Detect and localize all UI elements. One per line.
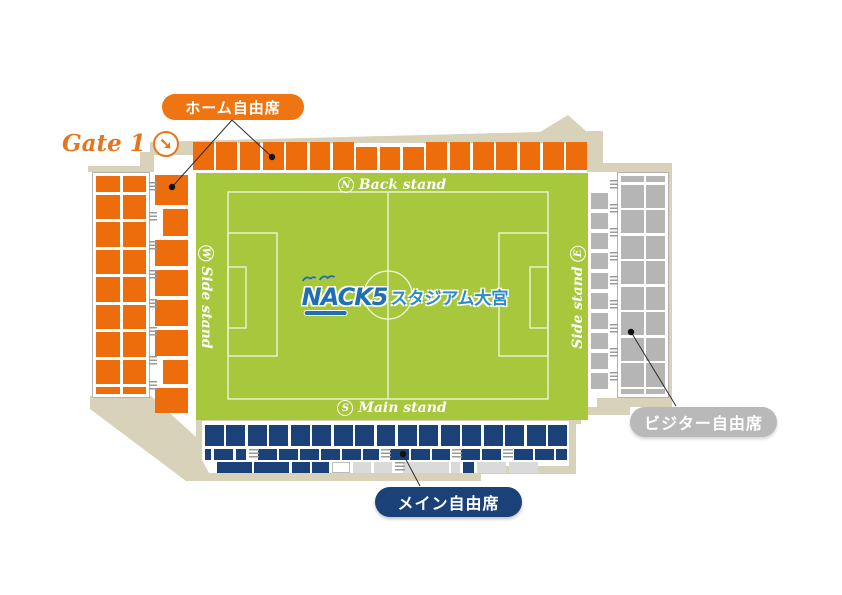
seat-block[interactable] xyxy=(591,313,608,329)
main-stand-letter: S xyxy=(337,400,353,416)
seat-block[interactable] xyxy=(300,449,319,460)
seat-block[interactable] xyxy=(155,330,188,356)
stairs-icon xyxy=(149,241,157,252)
seat-block[interactable] xyxy=(216,142,237,170)
seat-block[interactable] xyxy=(646,363,665,386)
seat-block[interactable] xyxy=(155,270,188,296)
stairs-icon xyxy=(149,381,157,392)
seat-block[interactable] xyxy=(286,142,307,170)
seat-block[interactable] xyxy=(377,425,396,446)
stairs-icon xyxy=(149,270,157,281)
seat-block[interactable] xyxy=(419,425,438,446)
seat-block[interactable] xyxy=(543,142,564,170)
seat-block[interactable] xyxy=(462,425,481,446)
stairs-icon xyxy=(149,356,157,367)
seat-block[interactable] xyxy=(163,360,188,384)
north-stand-blocks xyxy=(193,142,587,172)
seat-block[interactable] xyxy=(411,449,430,460)
seat-block[interactable] xyxy=(355,425,374,446)
seat-block[interactable] xyxy=(441,425,460,446)
stadium-logo-brand: NACK5 xyxy=(302,283,388,311)
west-side-stand-text: Side stand xyxy=(198,266,214,348)
gate-arrow-icon: ➘ xyxy=(153,131,179,157)
seat-block[interactable] xyxy=(123,195,147,219)
seat-block[interactable] xyxy=(390,449,409,460)
seat-block[interactable] xyxy=(123,305,147,329)
seat-block[interactable] xyxy=(163,209,188,236)
seat-block[interactable] xyxy=(332,462,350,473)
seat-block[interactable] xyxy=(96,305,120,329)
seat-block[interactable] xyxy=(363,449,379,460)
west-side-stand-letter: W xyxy=(198,245,214,261)
seat-block[interactable] xyxy=(646,312,665,335)
east-outer-stand xyxy=(617,172,669,398)
stairs-icon xyxy=(149,327,157,338)
seat-block[interactable] xyxy=(591,233,608,249)
seat-block[interactable] xyxy=(646,185,665,208)
seat-block[interactable] xyxy=(258,449,277,460)
east-side-stand-label: Side stand E xyxy=(570,245,586,348)
seat-block[interactable] xyxy=(374,462,392,473)
seat-block[interactable] xyxy=(535,449,554,460)
seat-block[interactable] xyxy=(621,312,644,335)
seat-block[interactable] xyxy=(646,236,665,259)
seat-block[interactable] xyxy=(646,338,665,361)
seat-block[interactable] xyxy=(248,425,267,446)
gate-1-marker: Gate 1 ➘ xyxy=(62,130,179,157)
seat-block[interactable] xyxy=(356,147,377,170)
seat-block[interactable] xyxy=(591,253,608,269)
home-free-seat-pill[interactable]: ホーム自由席 xyxy=(162,94,304,120)
seat-block[interactable] xyxy=(591,333,608,349)
seat-block[interactable] xyxy=(226,425,245,446)
seat-block[interactable] xyxy=(96,222,120,246)
seat-block[interactable] xyxy=(477,462,506,473)
seat-block[interactable] xyxy=(353,462,371,473)
seat-block[interactable] xyxy=(155,388,188,413)
seat-block[interactable] xyxy=(451,462,460,473)
stairs-icon xyxy=(452,449,462,460)
seat-block[interactable] xyxy=(484,425,503,446)
main-free-seat-pill[interactable]: メイン自由席 xyxy=(375,487,522,517)
main-stand-label: S Main stand xyxy=(196,400,588,416)
seat-block[interactable] xyxy=(205,425,224,446)
seat-block[interactable] xyxy=(96,360,120,384)
seat-block[interactable] xyxy=(509,462,538,473)
seat-block[interactable] xyxy=(217,462,252,473)
seat-block[interactable] xyxy=(403,147,424,170)
east-side-stand-letter: E xyxy=(570,245,586,261)
seat-block[interactable] xyxy=(240,142,261,170)
seat-block[interactable] xyxy=(482,449,501,460)
seat-block[interactable] xyxy=(269,425,288,446)
east-side-stand-text: Side stand xyxy=(570,266,586,348)
seat-block[interactable] xyxy=(334,425,353,446)
stairs-icon xyxy=(249,449,259,460)
seat-block[interactable] xyxy=(520,142,541,170)
seat-block[interactable] xyxy=(621,363,644,386)
seat-block[interactable] xyxy=(292,462,310,473)
logo-subtext-decoration xyxy=(305,311,347,315)
seat-block[interactable] xyxy=(591,213,608,229)
seat-block[interactable] xyxy=(403,462,449,473)
seat-block[interactable] xyxy=(426,142,447,170)
seat-block[interactable] xyxy=(96,387,120,394)
seat-block[interactable] xyxy=(155,175,188,205)
gate-1-label: Gate 1 xyxy=(62,130,146,157)
pitch: N Back stand S Main stand W Side stand S… xyxy=(196,173,588,420)
seat-block[interactable] xyxy=(621,176,644,182)
seat-block[interactable] xyxy=(123,222,147,246)
south-stand-row1 xyxy=(205,425,567,446)
seat-block[interactable] xyxy=(496,142,517,170)
seat-block[interactable] xyxy=(123,387,147,394)
back-stand-text: Back stand xyxy=(359,177,446,193)
logo-birds-icon xyxy=(302,274,336,284)
seat-block[interactable] xyxy=(646,389,665,394)
stairs-icon xyxy=(610,348,618,359)
seat-block[interactable] xyxy=(342,449,361,460)
seat-block[interactable] xyxy=(96,176,120,192)
seat-block[interactable] xyxy=(621,338,644,361)
seat-block[interactable] xyxy=(96,250,120,274)
seat-block[interactable] xyxy=(236,449,246,460)
seat-block[interactable] xyxy=(380,147,401,170)
stadium-seating-map: N Back stand S Main stand W Side stand S… xyxy=(0,0,842,595)
seat-block[interactable] xyxy=(123,250,147,274)
seat-block[interactable] xyxy=(646,210,665,233)
stairs-icon xyxy=(610,276,618,287)
seat-block[interactable] xyxy=(279,449,298,460)
northeast-corner xyxy=(587,131,603,172)
seat-block[interactable] xyxy=(566,142,587,170)
seat-block[interactable] xyxy=(505,425,524,446)
seat-block[interactable] xyxy=(514,449,533,460)
stairs-icon xyxy=(610,252,618,263)
seat-block[interactable] xyxy=(591,353,608,369)
seat-block[interactable] xyxy=(461,449,480,460)
stadium-logo-name: スタジアム大宮 xyxy=(391,284,509,309)
seat-block[interactable] xyxy=(591,293,608,309)
seat-block[interactable] xyxy=(646,176,665,182)
seat-block[interactable] xyxy=(155,240,188,266)
seat-block[interactable] xyxy=(254,462,289,473)
visitor-free-seat-pill[interactable]: ビジター自由席 xyxy=(630,407,777,437)
seat-block[interactable] xyxy=(432,449,450,460)
seat-block[interactable] xyxy=(621,261,644,284)
seat-block[interactable] xyxy=(321,449,340,460)
stairs-icon xyxy=(610,324,618,335)
seat-block[interactable] xyxy=(193,142,214,170)
seat-block[interactable] xyxy=(548,425,567,446)
seat-block[interactable] xyxy=(473,142,494,170)
back-stand-letter: N xyxy=(338,177,354,193)
seat-block[interactable] xyxy=(463,462,474,473)
stadium-logo: NACK5 スタジアム大宮 xyxy=(302,283,509,311)
seat-block[interactable] xyxy=(591,373,608,389)
stairs-icon xyxy=(395,462,405,473)
west-outer-stand xyxy=(92,172,150,398)
seat-block[interactable] xyxy=(556,449,567,460)
seat-block[interactable] xyxy=(621,389,644,394)
seat-block[interactable] xyxy=(263,142,284,170)
seat-block[interactable] xyxy=(96,332,120,356)
stairs-icon xyxy=(149,299,157,310)
seat-block[interactable] xyxy=(621,236,644,259)
seat-block[interactable] xyxy=(214,449,233,460)
seat-block[interactable] xyxy=(450,142,471,170)
seat-block[interactable] xyxy=(123,332,147,356)
seat-block[interactable] xyxy=(123,277,147,301)
seat-block[interactable] xyxy=(205,449,211,460)
stairs-icon xyxy=(610,204,618,215)
seat-block[interactable] xyxy=(96,195,120,219)
stairs-icon xyxy=(149,212,157,223)
seat-block[interactable] xyxy=(398,425,417,446)
stairs-icon xyxy=(381,449,391,460)
stairs-icon xyxy=(610,300,618,311)
seat-block[interactable] xyxy=(123,360,147,384)
seat-block[interactable] xyxy=(333,142,354,170)
seat-block[interactable] xyxy=(291,425,310,446)
seat-block[interactable] xyxy=(646,287,665,310)
seat-block[interactable] xyxy=(621,185,644,208)
seat-block[interactable] xyxy=(591,193,608,209)
stairs-icon xyxy=(610,372,618,383)
seat-block[interactable] xyxy=(310,142,331,170)
back-stand-label: N Back stand xyxy=(196,177,588,193)
main-stand-text: Main stand xyxy=(358,400,446,416)
seat-block[interactable] xyxy=(621,287,644,310)
seat-block[interactable] xyxy=(155,300,188,326)
stairs-icon xyxy=(610,228,618,239)
seat-block[interactable] xyxy=(123,176,147,192)
stairs-icon xyxy=(610,180,618,191)
seat-block[interactable] xyxy=(527,425,546,446)
stairs-icon xyxy=(149,182,157,193)
seat-block[interactable] xyxy=(646,261,665,284)
seat-block[interactable] xyxy=(312,462,329,473)
seat-block[interactable] xyxy=(591,273,608,289)
stairs-icon xyxy=(503,449,513,460)
seat-block[interactable] xyxy=(621,210,644,233)
seat-block[interactable] xyxy=(312,425,331,446)
west-side-stand-label: W Side stand xyxy=(198,245,214,348)
seat-block[interactable] xyxy=(96,277,120,301)
